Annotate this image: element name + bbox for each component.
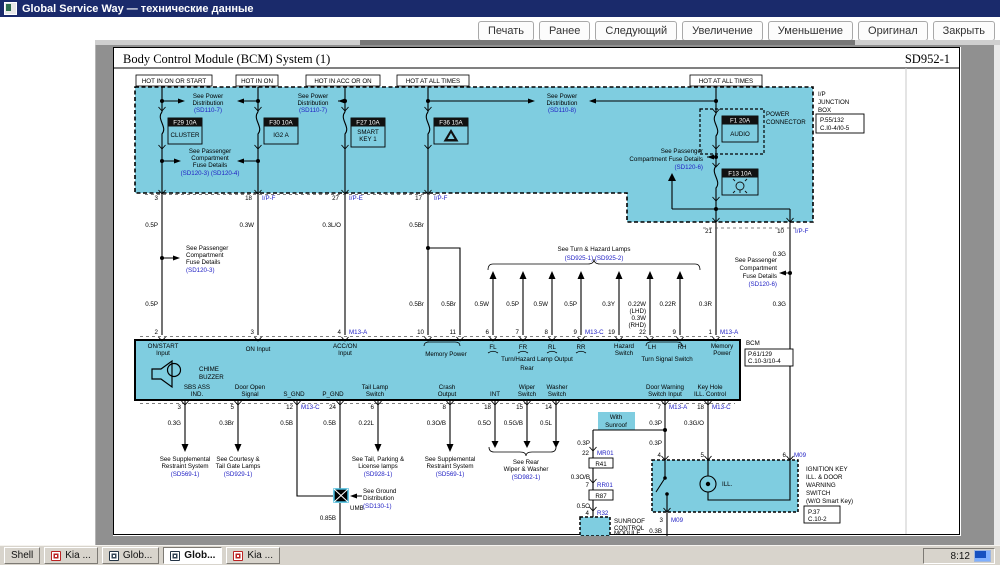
diagram-label: 0.5Br	[409, 222, 424, 229]
original-size-button[interactable]: Оригинал	[858, 21, 928, 41]
diagram-label: 0.3G	[168, 420, 182, 427]
diagram-label: JUNCTION	[818, 99, 849, 106]
diagram-label: 10	[777, 228, 784, 235]
diagram-label: HOT IN ACC OR ON	[314, 78, 371, 85]
diagram-label: I/P-F	[795, 228, 809, 235]
diagram-label: ON Input	[246, 346, 271, 353]
diagram-title: Body Control Module (BCM) System (1)	[123, 52, 330, 66]
diagram-label: Fuse Details	[193, 162, 227, 169]
glob-icon	[109, 551, 119, 561]
taskbar-item-label: Glob...	[184, 550, 215, 561]
diagram-label: Rear	[520, 365, 533, 372]
diagram-label: (SD928-1)	[364, 471, 393, 478]
diagram-label: Tail Lamp	[362, 384, 389, 391]
diagram-label: RH	[678, 344, 687, 351]
taskbar-item-label: Kia ...	[247, 550, 273, 561]
diagram-label: Compartment	[191, 155, 229, 162]
diagram-label: I/P	[818, 91, 826, 98]
diagram-label: 0.3G/O	[684, 420, 704, 427]
diagram-label: Compartment	[186, 252, 224, 259]
diagram-label: Input	[156, 350, 170, 357]
diagram-label: 11	[450, 329, 457, 336]
diagram-label: (SD929-1)	[224, 471, 253, 478]
diagram-label: 2	[155, 329, 159, 336]
diagram-label: 0.5W	[534, 301, 549, 308]
diagram-label: F27 10A	[356, 120, 380, 127]
diagram-label: WARNING	[806, 482, 836, 489]
app-icon	[4, 2, 17, 15]
zoom-out-button[interactable]: Уменьшение	[768, 21, 853, 41]
right-margin	[994, 45, 1000, 545]
kia-icon	[233, 551, 243, 561]
diagram-label: Compartment	[740, 265, 778, 272]
diagram-label: 7	[658, 404, 662, 411]
diagram-label: See Passenger	[661, 148, 703, 155]
diagram-label: 3	[155, 195, 159, 202]
diagram-label: 27	[332, 195, 339, 202]
diagram-label: 24	[329, 404, 336, 411]
diagram-label: P.55/132	[820, 117, 845, 124]
taskbar-item-kia-2[interactable]: Kia ...	[226, 547, 280, 564]
diagram-label: M13-A	[349, 329, 368, 336]
ground-junction-umb	[334, 489, 348, 502]
diagram-label: BOX	[818, 107, 831, 114]
diagram-label: See Supplemental	[160, 456, 211, 463]
diagram-label: HOT IN ON	[241, 78, 273, 85]
diagram-label: 10	[417, 329, 424, 336]
diagram-label: (SD110-7)	[299, 107, 327, 114]
diagram-label: CHIME	[199, 366, 219, 373]
diagram-label: 0.5B	[323, 420, 336, 427]
diagram-label: P.37	[808, 509, 820, 516]
next-button[interactable]: Следующий	[595, 21, 677, 41]
window-titlebar: Global Service Way — технические данные	[0, 0, 1000, 17]
diagram-label: INT	[490, 391, 500, 398]
diagram-label: 0.85B	[320, 515, 336, 522]
diagram-label: RR	[577, 344, 586, 351]
diagram-label: 6	[371, 404, 375, 411]
diagram-label: BCM	[746, 340, 760, 347]
diagram-label: (W/O Smart Key)	[806, 498, 853, 505]
diagram-label: 8	[545, 329, 549, 336]
close-button[interactable]: Закрыть	[933, 21, 995, 41]
diagram-label: CONNECTOR	[766, 119, 806, 126]
diagram-label: 0.3G	[773, 251, 787, 258]
diagram-label: See Power	[298, 93, 328, 100]
diagram-label: S_GND	[283, 391, 305, 398]
window-title: Global Service Way — технические данные	[22, 3, 254, 15]
glob-icon	[170, 551, 180, 561]
diagram-label: 0.3B	[649, 528, 662, 535]
diagram-label: 0.22R	[659, 301, 676, 308]
diagram-label: 9	[574, 329, 578, 336]
diagram-label: Switch Input	[648, 391, 682, 398]
diagram-label: Fuse Details	[743, 273, 777, 280]
diagram-label: (SD120-6)	[748, 281, 777, 288]
diagram-label: BUZZER	[199, 374, 224, 381]
diagram-label: 0.22W	[628, 301, 646, 308]
wiring-diagram-page: Body Control Module (BCM) System (1) SD9…	[113, 47, 961, 536]
diagram-label: M09	[671, 517, 684, 524]
taskbar-item-shell[interactable]: Shell	[4, 547, 40, 564]
diagram-label: IND.	[191, 391, 204, 398]
diagram-label: Distribution	[298, 100, 330, 107]
diagram-label: Switch	[548, 391, 567, 398]
system-tray[interactable]: 8:12	[923, 548, 995, 564]
display-tray-icon[interactable]	[974, 550, 991, 562]
diagram-label: Wiper	[519, 384, 535, 391]
diagram-label: F13 10A	[728, 171, 752, 178]
diagram-label: IGNITION KEY	[806, 466, 848, 473]
diagram-label: See Turn & Hazard Lamps	[558, 246, 631, 253]
diagram-label: 0.5B	[280, 420, 293, 427]
diagram-label: See Passenger	[186, 245, 228, 252]
diagram-label: Memory	[711, 343, 734, 350]
diagram-label: 3	[178, 404, 182, 411]
diagram-label: 7	[516, 329, 520, 336]
diagram-label: 18	[245, 195, 252, 202]
diagram-label: RL	[548, 344, 556, 351]
diagram-label: Fuse Details	[186, 259, 220, 266]
diagram-label: Turn/Hazard Lamp Output	[501, 356, 573, 363]
diagram-label: 22	[582, 450, 589, 457]
diagram-label: 9	[673, 329, 677, 336]
diagram-label: M13-C	[301, 404, 320, 411]
diagram-label: 14	[545, 404, 552, 411]
diagram-label: SMART	[357, 129, 379, 136]
diagram-label: (LHD)	[630, 308, 647, 315]
diagram-label: (SD569-1)	[171, 471, 200, 478]
diagram-label: UMB	[350, 505, 364, 512]
diagram-code: SD952-1	[905, 52, 950, 66]
diagram-label: SBS ASS	[184, 384, 210, 391]
diagram-label: 0.3P	[577, 440, 590, 447]
diagram-label: SUNROOF	[614, 518, 645, 525]
taskbar-item-glob-1[interactable]: Glob...	[102, 547, 159, 564]
diagram-label: FR	[519, 344, 528, 351]
diagram-label: 0.5W	[475, 301, 490, 308]
diagram-label: Switch	[518, 391, 537, 398]
diagram-label: FL	[489, 344, 497, 351]
diagram-label: 18	[697, 404, 704, 411]
diagram-label: Hazard	[614, 343, 635, 350]
diagram-label: 8	[443, 404, 447, 411]
diagram-label: CLUSTER	[171, 132, 200, 139]
workspace: Body Control Module (BCM) System (1) SD9…	[0, 45, 1000, 545]
diagram-label: ON/START	[148, 343, 179, 350]
diagram-label: 0.5O	[478, 420, 492, 427]
diagram-label: POWER	[766, 111, 790, 118]
diagram-label: See Ground	[363, 488, 397, 495]
diagram-label: 5	[231, 404, 235, 411]
diagram-label: ACC/ON	[333, 343, 357, 350]
diagram-label: C.10-3/10-4	[748, 358, 781, 365]
diagram-label: 17	[415, 195, 422, 202]
diagram-label: 0.3W	[632, 315, 647, 322]
diagram-label: HOT IN ON OR START	[142, 78, 207, 85]
diagram-label: Power	[713, 350, 731, 357]
diagram-label: R87	[595, 493, 607, 500]
diagram-label: Input	[338, 350, 352, 357]
diagram-label: 18	[484, 404, 491, 411]
diagram-label: (SD569-1)	[436, 471, 465, 478]
diagram-label: C.I0-4/I0-5	[820, 125, 850, 132]
diagram-label: (SD120-3)	[186, 267, 215, 274]
diagram-label: 0.3P	[649, 420, 662, 427]
diagram-label: 6	[486, 329, 490, 336]
diagram-label: See Power	[193, 93, 223, 100]
diagram-label: (SD120-6)	[674, 164, 703, 171]
diagram-label: 1	[709, 329, 713, 336]
diagram-label: 0.3O/B	[571, 474, 590, 481]
diagram-label: R41	[595, 461, 607, 468]
diagram-label: Distribution	[363, 495, 395, 502]
diagram-label: M13-C	[712, 404, 731, 411]
kia-icon	[51, 551, 61, 561]
diagram-label: Signal	[241, 391, 258, 398]
diagram-label: 15	[516, 404, 523, 411]
diagram-label: 0.5P	[506, 301, 519, 308]
diagram-label: 7	[586, 482, 590, 489]
diagram-label: Door Warning	[646, 384, 684, 391]
diagram-label: 0.3L/O	[322, 222, 341, 229]
diagram-label: 0.5P	[145, 222, 158, 229]
diagram-label: 0.3Br	[219, 420, 234, 427]
diagram-label: (SD982-1)	[512, 474, 541, 481]
diagram-label: C.10-2	[808, 516, 827, 523]
diagram-label: Distribution	[193, 100, 225, 107]
zoom-in-button[interactable]: Увеличение	[682, 21, 763, 41]
diagram-label: MODULE	[614, 530, 640, 536]
diagram-label: LH	[648, 344, 656, 351]
diagram-label: 5	[701, 452, 705, 459]
diagram-label: See Power	[547, 93, 577, 100]
clock: 8:12	[951, 551, 970, 562]
diagram-label: See Tail, Parking &	[352, 456, 405, 463]
diagram-label: Switch	[366, 391, 385, 398]
diagram-label: 4	[338, 329, 342, 336]
taskbar: ShellKia ...Glob...Glob...Kia ... 8:12	[0, 545, 1000, 565]
diagram-label: I/P-E	[349, 195, 363, 202]
diagram-label: Distribution	[547, 100, 579, 107]
diagram-label: AUDIO	[730, 131, 750, 138]
diagram-label: 3	[660, 517, 664, 524]
diagram-label: IG2 A	[273, 132, 289, 139]
diagram-label: HOT AT ALL TIMES	[406, 78, 460, 85]
diagram-label: License lamps	[358, 463, 398, 470]
diagram-label: 0.3W	[240, 222, 255, 229]
taskbar-item-glob-2[interactable]: Glob...	[163, 547, 222, 564]
diagram-label: I/P-F	[434, 195, 448, 202]
diagram-label: M13-C	[585, 329, 604, 336]
diagram-label: See Supplemental	[425, 456, 476, 463]
taskbar-item-label: Kia ...	[65, 550, 91, 561]
diagram-label: 21	[705, 228, 712, 235]
previous-button[interactable]: Ранее	[539, 21, 590, 41]
diagram-label: 0.22L	[359, 420, 375, 427]
diagram-label: 0.5O	[577, 503, 591, 510]
diagram-label: ILL. & DOOR	[806, 474, 843, 481]
diagram-label: Sunroof	[605, 422, 627, 429]
diagram-label: Door Open	[235, 384, 266, 391]
diagram-label: Output	[438, 391, 457, 398]
taskbar-item-label: Glob...	[123, 550, 152, 561]
diagram-label: Switch	[615, 350, 634, 357]
diagram-label: Memory Power	[425, 351, 467, 358]
diagram-label: See Passenger	[189, 148, 231, 155]
diagram-label: See Passenger	[735, 257, 777, 264]
diagram-label: 4	[658, 452, 662, 459]
diagram-label: HOT AT ALL TIMES	[699, 78, 753, 85]
diagram-label: (SD110-8)	[548, 107, 576, 114]
diagram-label: 12	[286, 404, 293, 411]
diagram-label: P.61/129	[748, 351, 773, 358]
diagram-label: KEY 1	[359, 136, 377, 143]
diagram-label: ILL. Control	[694, 391, 726, 398]
diagram-label: 0.5G/B	[504, 420, 523, 427]
diagram-label: P_GND	[322, 391, 344, 398]
diagram-label: 0.5P	[145, 301, 158, 308]
diagram-label: F29 10A	[173, 120, 197, 127]
diagram-label: (SD110-7)	[194, 107, 222, 114]
diagram-label: ILL.	[722, 481, 733, 488]
diagram-label: 0.3P	[649, 440, 662, 447]
diagram-label: Washer	[546, 384, 567, 391]
diagram-label: 0.3Y	[602, 301, 615, 308]
diagram-label: I/P-F	[262, 195, 276, 202]
diagram-label: 0.5P	[564, 301, 577, 308]
diagram-label: (SD120-3) (SD120-4)	[181, 170, 240, 177]
diagram-label: Wiper & Washer	[504, 466, 549, 473]
taskbar-item-label: Shell	[11, 550, 33, 561]
diagram-label: M13-A	[669, 404, 688, 411]
diagram-label: Restraint System	[426, 463, 473, 470]
diagram-label: Tail Gate Lamps	[216, 463, 261, 470]
diagram-label: 22	[639, 329, 646, 336]
diagram-label: R32	[597, 510, 609, 517]
taskbar-item-kia-1[interactable]: Kia ...	[44, 547, 98, 564]
diagram-label: 0.5Br	[441, 301, 456, 308]
diagram-label: F36 15A	[439, 120, 463, 127]
diagram-label: (SD130-1)	[363, 503, 392, 510]
diagram-label: With	[610, 414, 623, 421]
diagram-label: Crash	[439, 384, 456, 391]
diagram-label: 19	[608, 329, 615, 336]
diagram-label: 0.3G	[773, 301, 787, 308]
diagram-label: 0.5L	[540, 420, 553, 427]
diagram-label: (RHD)	[628, 322, 646, 329]
left-panel	[0, 45, 96, 545]
diagram-label: (SD925-1) (SD925-2)	[565, 255, 624, 262]
diagram-label: 6	[783, 452, 787, 459]
diagram-label: 3	[251, 329, 255, 336]
diagram-label: See Courtesy &	[216, 456, 260, 463]
diagram-label: Restraint System	[161, 463, 208, 470]
diagram-label: M13-A	[720, 329, 739, 336]
diagram-label: RR01	[597, 482, 613, 489]
diagram-label: SWITCH	[806, 490, 830, 497]
diagram-label: MR01	[597, 450, 614, 457]
diagram-label: Key Hole	[697, 384, 723, 391]
diagram-label: F30 10A	[269, 120, 293, 127]
print-button[interactable]: Печать	[478, 21, 534, 41]
diagram-label: Compartment Fuse Details	[629, 156, 703, 163]
diagram-label: 4	[586, 510, 590, 517]
diagram-label: See Rear	[513, 459, 539, 466]
diagram-label: F1 20A	[730, 118, 751, 125]
diagram-label: 0.3R	[699, 301, 713, 308]
diagram-label: Turn Signal Switch	[641, 356, 693, 363]
diagram-label: M09	[794, 452, 807, 459]
sunroof-control-module-block	[580, 517, 610, 536]
diagram-label: 0.5Br	[409, 301, 424, 308]
diagram-label: 0.3O/B	[427, 420, 446, 427]
